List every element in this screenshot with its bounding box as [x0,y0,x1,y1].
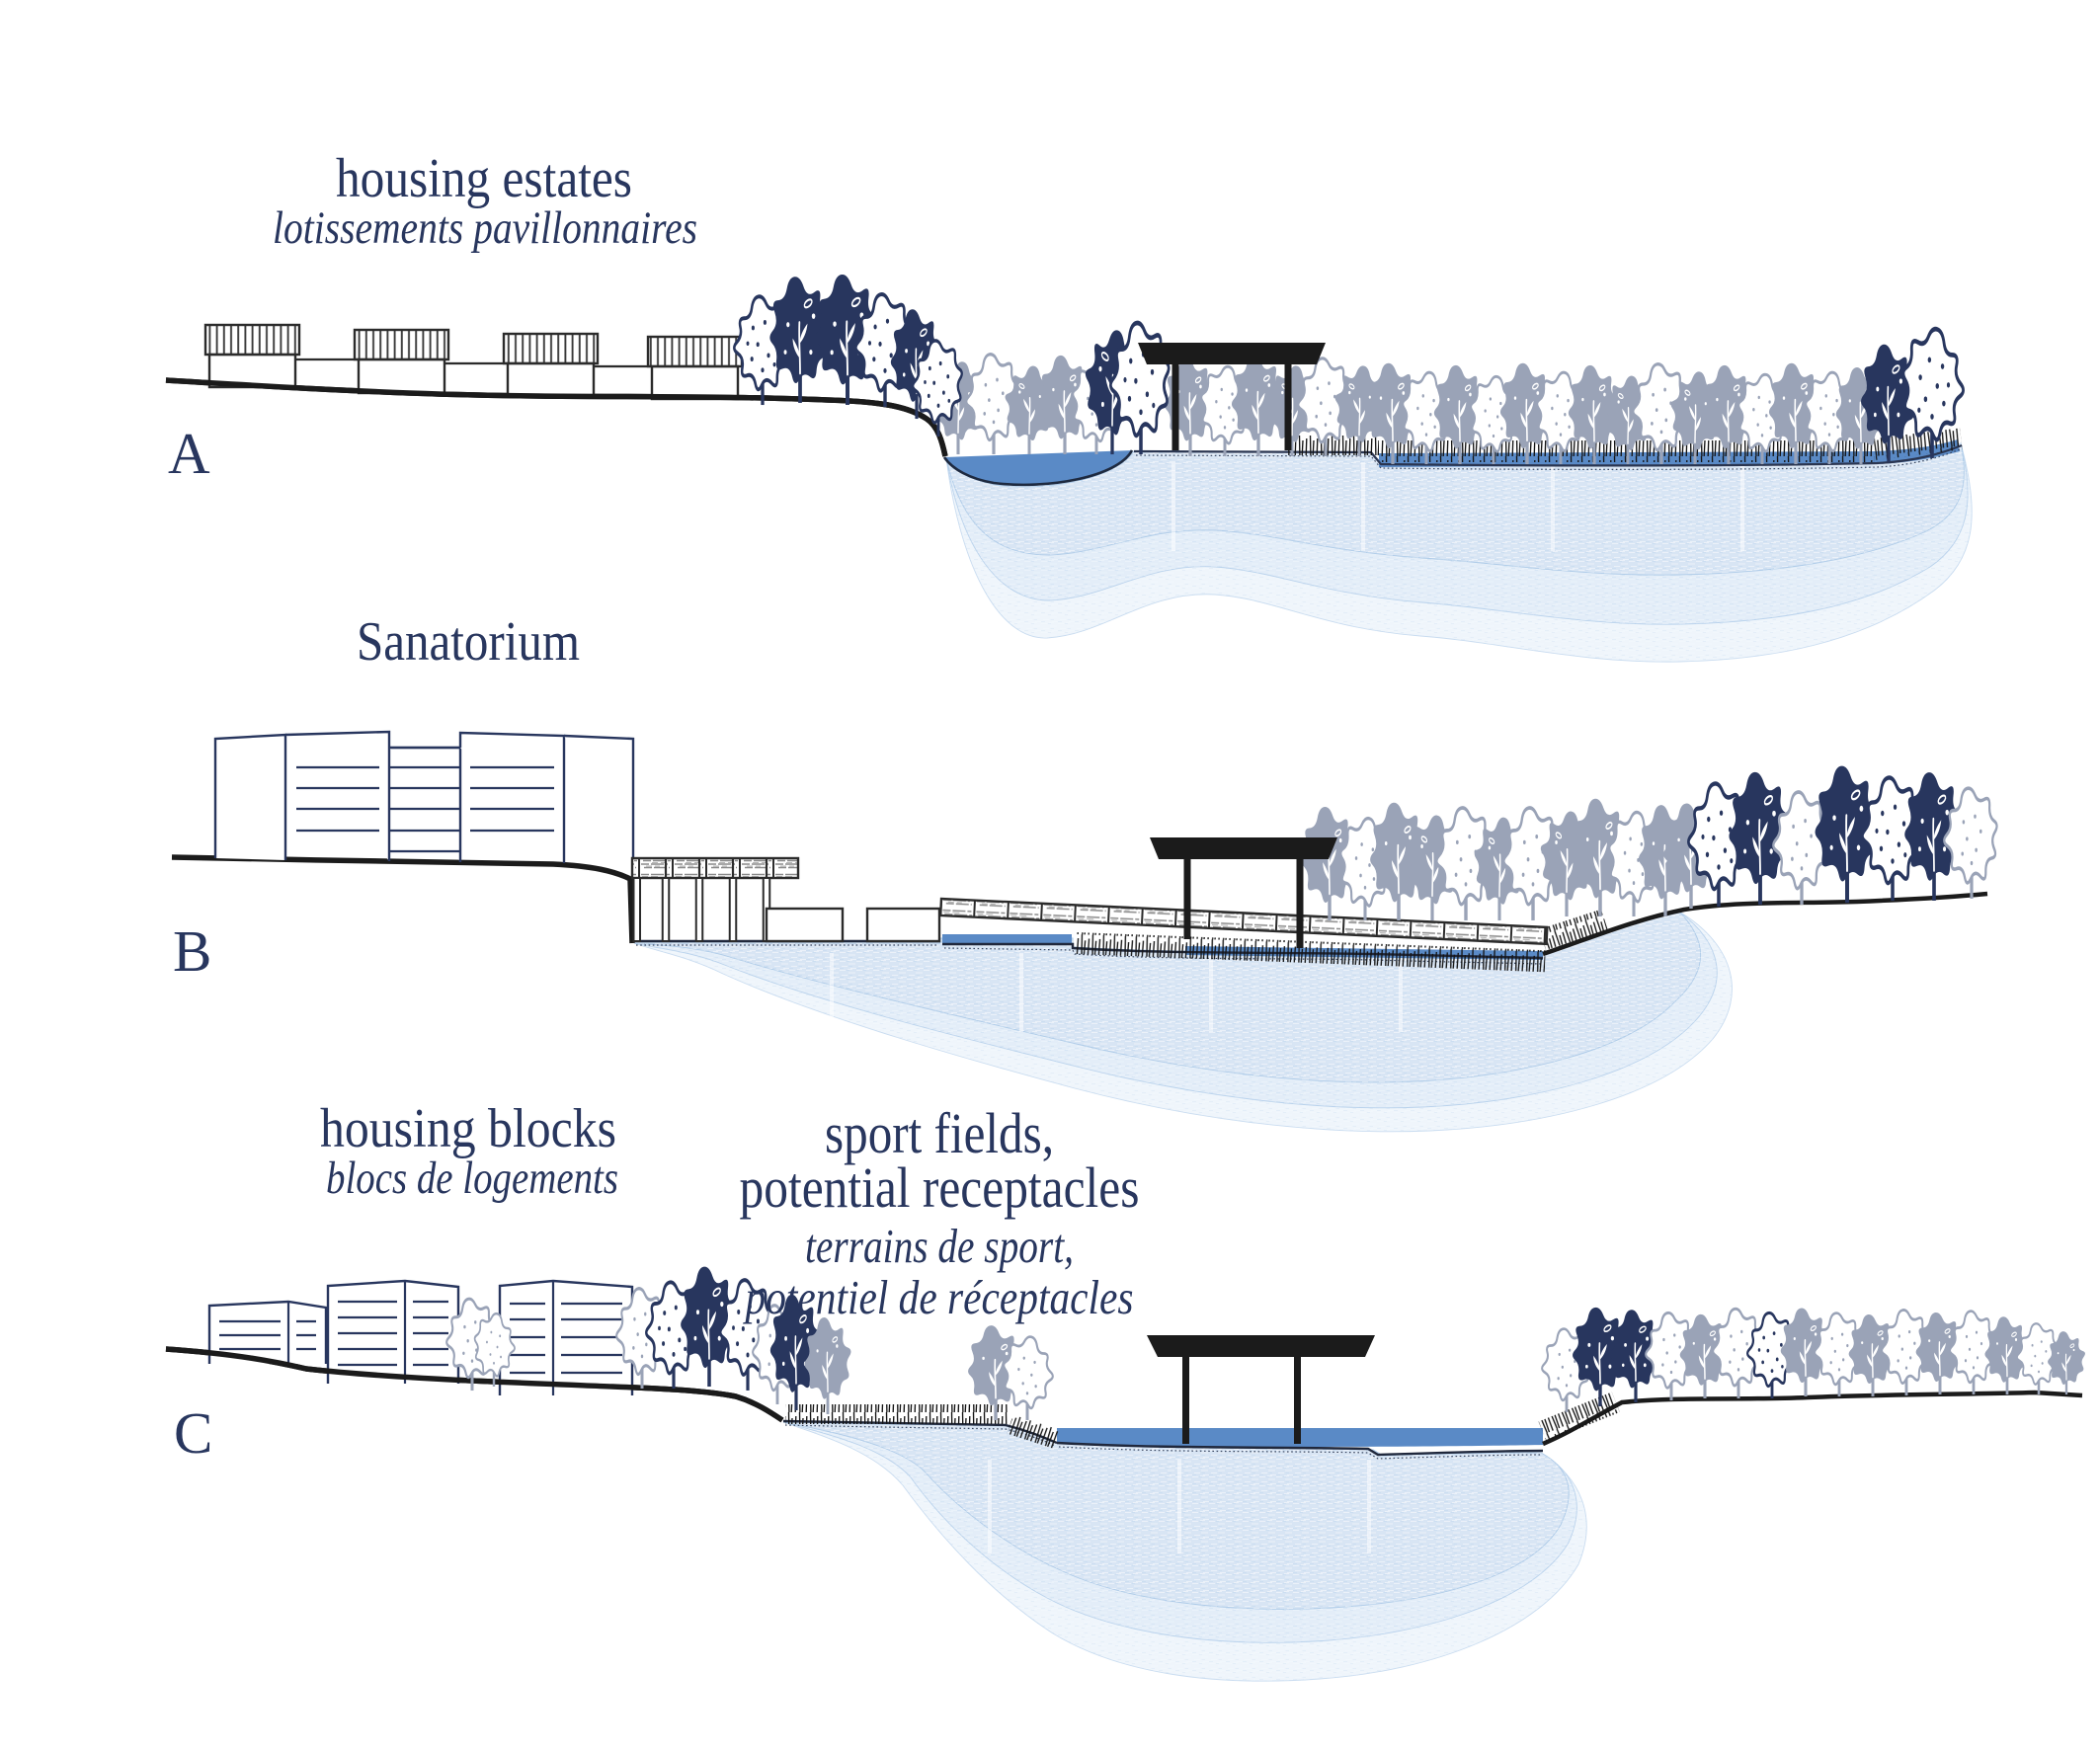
svg-text:B: B [173,918,211,984]
svg-text:Sanatorium: Sanatorium [357,611,580,673]
svg-text:terrains de sport,: terrains de sport, [805,1219,1074,1273]
svg-text:A: A [168,421,210,486]
svg-text:C: C [174,1400,212,1466]
svg-text:housing blocks: housing blocks [320,1098,616,1159]
svg-text:housing estates: housing estates [336,148,632,209]
svg-text:blocs de logements: blocs de logements [326,1153,618,1204]
svg-text:lotissements pavillonnaires: lotissements pavillonnaires [273,202,697,254]
svg-text:potential receptacles: potential receptacles [740,1155,1140,1220]
svg-text:potentiel de réceptacles: potentiel de réceptacles [743,1270,1134,1324]
